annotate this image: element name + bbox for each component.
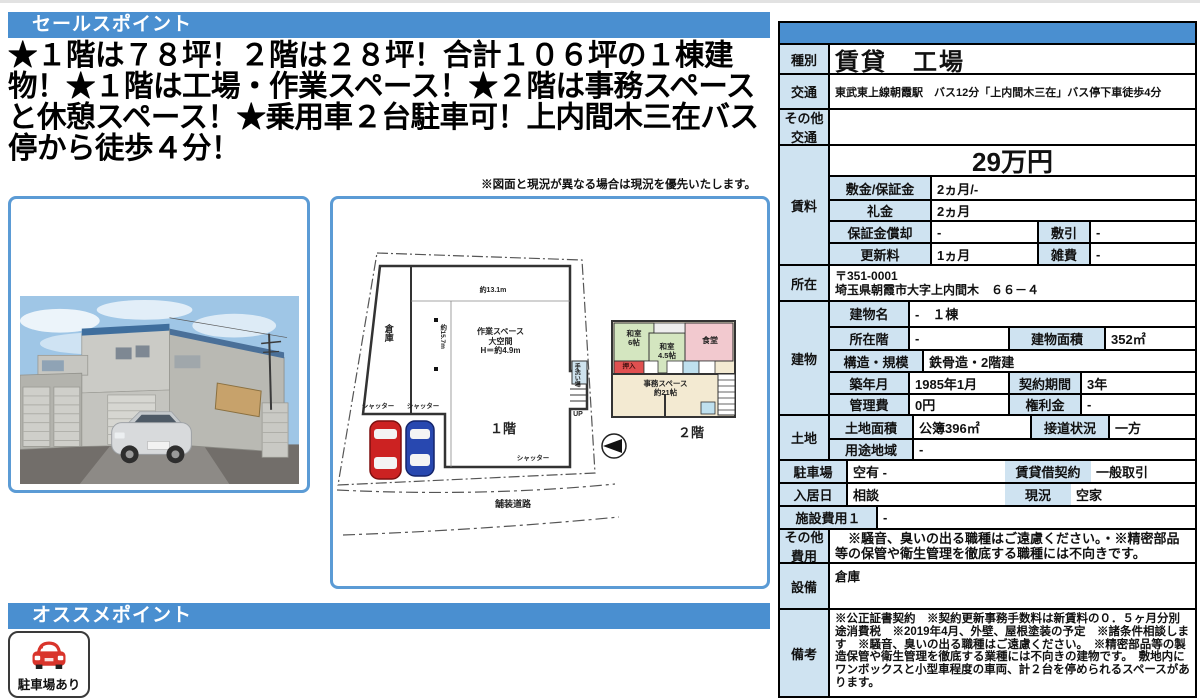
compass-icon [602,434,626,458]
row-facility-cost: 施設費用１ - [780,505,1195,528]
row-zoning: 用途地域 - [830,438,1195,459]
row-rent-amount: 29万円 [830,146,1195,175]
building-photo [20,296,299,484]
row-land-area: 土地面積 公簿396㎡ 接道状況 一方 [830,416,1195,438]
floorplan-label-warehouse: 倉庫 [383,324,394,342]
land-area-value: 公簿396㎡ [912,416,1030,438]
key-right-value: - [1080,395,1195,414]
row-other-access: その他 交通 [780,108,1195,144]
equipment-value: 倉庫 [830,564,1195,608]
deposit-value: 2ヵ月/- [930,177,1195,199]
remarks-label: 備考 [780,610,830,696]
other-access-label: その他 交通 [780,110,830,144]
floorplan-label-1f: １階 [483,421,523,437]
equipment-label: 設備 [780,564,830,608]
misc-fee-label: 雑費 [1037,244,1089,264]
row-key-money: 礼金 2ヵ月 [830,199,1195,220]
floorplan-label-washitsu6: 和室 6帖 [615,329,653,347]
floorplan-label-washitsu45: 和室 4.5帖 [650,342,684,360]
access-value: 東武東上線朝霞駅 バス12分「上内間木三在」バス停下車徒歩4分 [830,75,1195,108]
rent-amount: 29万円 [830,146,1195,175]
row-building-name: 建物名 - １棟 [830,302,1195,326]
land-area-label: 土地面積 [830,416,912,438]
building-area-label: 建物面積 [1008,328,1104,350]
floorplan-label-road: 舗装道路 [468,499,558,510]
row-renewal-fee: 更新料 1ヵ月 雑費 - [830,242,1195,264]
recommend-header-label: オススメポイント [32,605,192,626]
move-in-label: 入居日 [780,484,848,505]
group-other-cost: その他 費用 ※騒音、臭いの出る職種はご遠慮ください。・※精密部品等の保管や衛生… [780,528,1195,562]
amortization-value: - [930,222,1037,242]
facility-cost-value: - [878,507,1195,528]
floorplan-label-oshiire: 押入 [615,363,643,371]
built-year-label: 築年月 [830,373,908,393]
building-name-label: 建物名 [830,302,908,326]
group-remarks: 備考 ※公正証書契約 ※契約更新事務手数料は新賃料の０．５ヶ月分別途消費税 ※2… [780,608,1195,696]
current-status-value: 空家 [1071,484,1195,505]
floorplan-label-2f: ２階 [671,425,711,441]
row-address: 所在 〒351-0001 埼玉県朝霞市大字上内間木 ６６－４ [780,264,1195,300]
renewal-fee-label: 更新料 [830,244,930,264]
building-floor-value: - [908,328,1008,350]
row-access: 交通 東武東上線朝霞駅 バス12分「上内間木三在」バス停下車徒歩4分 [780,73,1195,108]
sales-header-bar: セールスポイント [8,12,770,38]
row-parking: 駐車場 空有 - 賃貸借契約 一般取引 [780,459,1195,482]
floorplan-label-dim-top: 約13.1m [453,287,533,295]
disclaimer-note: ※図面と現況が異なる場合は現況を優先いたします。 [8,176,756,192]
road-contact-value: 一方 [1108,416,1195,438]
key-money-value: 2ヵ月 [930,201,1195,220]
row-building-floor: 所在階 - 建物面積 352㎡ [830,326,1195,350]
land-group-label: 土地 [780,416,830,459]
move-in-value: 相談 [848,484,1005,505]
zoning-label: 用途地域 [830,440,912,459]
road-contact-label: 接道状況 [1030,416,1108,438]
zoning-value: - [912,440,1195,459]
lease-contract-label: 賃貸借契約 [1005,461,1091,482]
facility-cost-label: 施設費用１ [780,507,878,528]
floorplan-label-up: UP [566,411,590,419]
other-cost-value: ※騒音、臭いの出る職種はご遠慮ください。・※精密部品等の保管や衛生管理を徹底する… [830,530,1195,562]
row-structure: 構造・規模 鉄骨造・2階建 [830,349,1195,371]
amortization-label: 保証金償却 [830,222,930,242]
deposit-label: 敷金/保証金 [830,177,930,199]
table-title-bar [780,23,1195,43]
shikibiki-label: 敷引 [1037,222,1089,242]
car-icon [27,636,71,669]
built-year-value: 1985年1月 [908,373,1008,393]
access-label: 交通 [780,75,830,108]
shikibiki-value: - [1089,222,1195,242]
parking-label: 駐車場 [780,461,848,482]
remarks-value: ※公正証書契約 ※契約更新事務手数料は新賃料の０．５ヶ月分別途消費税 ※2019… [830,610,1195,696]
group-equipment: 設備 倉庫 [780,562,1195,608]
sales-header-label: セールスポイント [32,14,192,35]
type-label: 種別 [780,45,830,73]
building-area-value: 352㎡ [1104,328,1195,350]
management-fee-label: 管理費 [830,395,908,414]
group-land: 土地 土地面積 公簿396㎡ 接道状況 一方 用途地域 - [780,414,1195,459]
misc-fee-value: - [1089,244,1195,264]
rent-group-label: 賃料 [780,146,830,264]
type-value: 賃貸 工場 [830,45,1195,73]
floorplan-label-workspace: 作業スペース 大空間 H＝約4.9m [458,327,543,356]
management-fee-value: 0円 [908,395,1008,414]
floorplan-label-wash: 手洗い場 [572,363,579,387]
key-money-label: 礼金 [830,201,930,220]
blue-car-icon [406,421,434,476]
row-amortization: 保証金償却 - 敷引 - [830,220,1195,242]
address-label: 所在 [780,266,830,300]
building-photo-illustration [20,296,299,484]
other-cost-label: その他 費用 [780,530,830,562]
parking-value: 空有 - [848,461,1005,482]
contract-term-label: 契約期間 [1008,373,1080,393]
row-built-year: 築年月 1985年1月 契約期間 3年 [830,371,1195,393]
building-name-value: - １棟 [908,302,1195,326]
property-flyer-page: セールスポイント ★１階は７８坪！２階は２８坪！合計１０６坪の１棟建物！★１階は… [0,0,1200,698]
other-access-value [830,110,1195,144]
group-building: 建物 建物名 - １棟 所在階 - 建物面積 352㎡ 構造・規模 鉄骨造・2階… [780,300,1195,414]
structure-value: 鉄骨造・2階建 [922,351,1195,371]
row-type: 種別 賃貸 工場 [780,43,1195,73]
row-management-fee: 管理費 0円 権利金 - [830,393,1195,414]
floorplan-label-dining: 食堂 [695,336,725,346]
floorplan-label-dim-left: 約15.7m [438,324,446,349]
group-rent: 賃料 29万円 敷金/保証金 2ヵ月/- 礼金 2ヵ月 保証金償却 - 敷引 - [780,144,1195,264]
floorplan-label-office: 事務スペース 約21帖 [628,379,703,397]
floorplan-frame: 倉庫 約13.1m 約15.7m 作業スペース 大空間 H＝約4.9m シャッタ… [330,196,770,589]
structure-label: 構造・規模 [830,351,922,371]
photo-frame [8,196,310,493]
sales-points-text: ★１階は７８坪！２階は２８坪！合計１０６坪の１棟建物！★１階は工場・作業スペース… [8,40,772,164]
row-deposit: 敷金/保証金 2ヵ月/- [830,175,1195,199]
key-right-label: 権利金 [1008,395,1080,414]
floorplan-label-shutter-2: シャッター [403,403,443,411]
address-value: 〒351-0001 埼玉県朝霞市大字上内間木 ６６－４ [830,266,1195,300]
building-floor-label: 所在階 [830,328,908,350]
building-group-label: 建物 [780,302,830,414]
recommend-header-bar: オススメポイント [8,603,770,629]
floorplan-label-shutter-1: シャッター [358,403,398,411]
parking-badge-label: 駐車場あり [10,674,88,693]
property-table: 種別 賃貸 工場 交通 東武東上線朝霞駅 バス12分「上内間木三在」バス停下車徒… [778,21,1197,698]
current-status-label: 現況 [1005,484,1071,505]
red-car-icon [370,421,401,479]
lease-contract-value: 一般取引 [1091,461,1195,482]
contract-term-value: 3年 [1080,373,1195,393]
renewal-fee-value: 1ヵ月 [930,244,1037,264]
parking-badge: 駐車場あり [8,631,90,698]
floorplan-label-shutter-3: シャッター [513,455,553,463]
row-move-in: 入居日 相談 現況 空家 [780,482,1195,505]
